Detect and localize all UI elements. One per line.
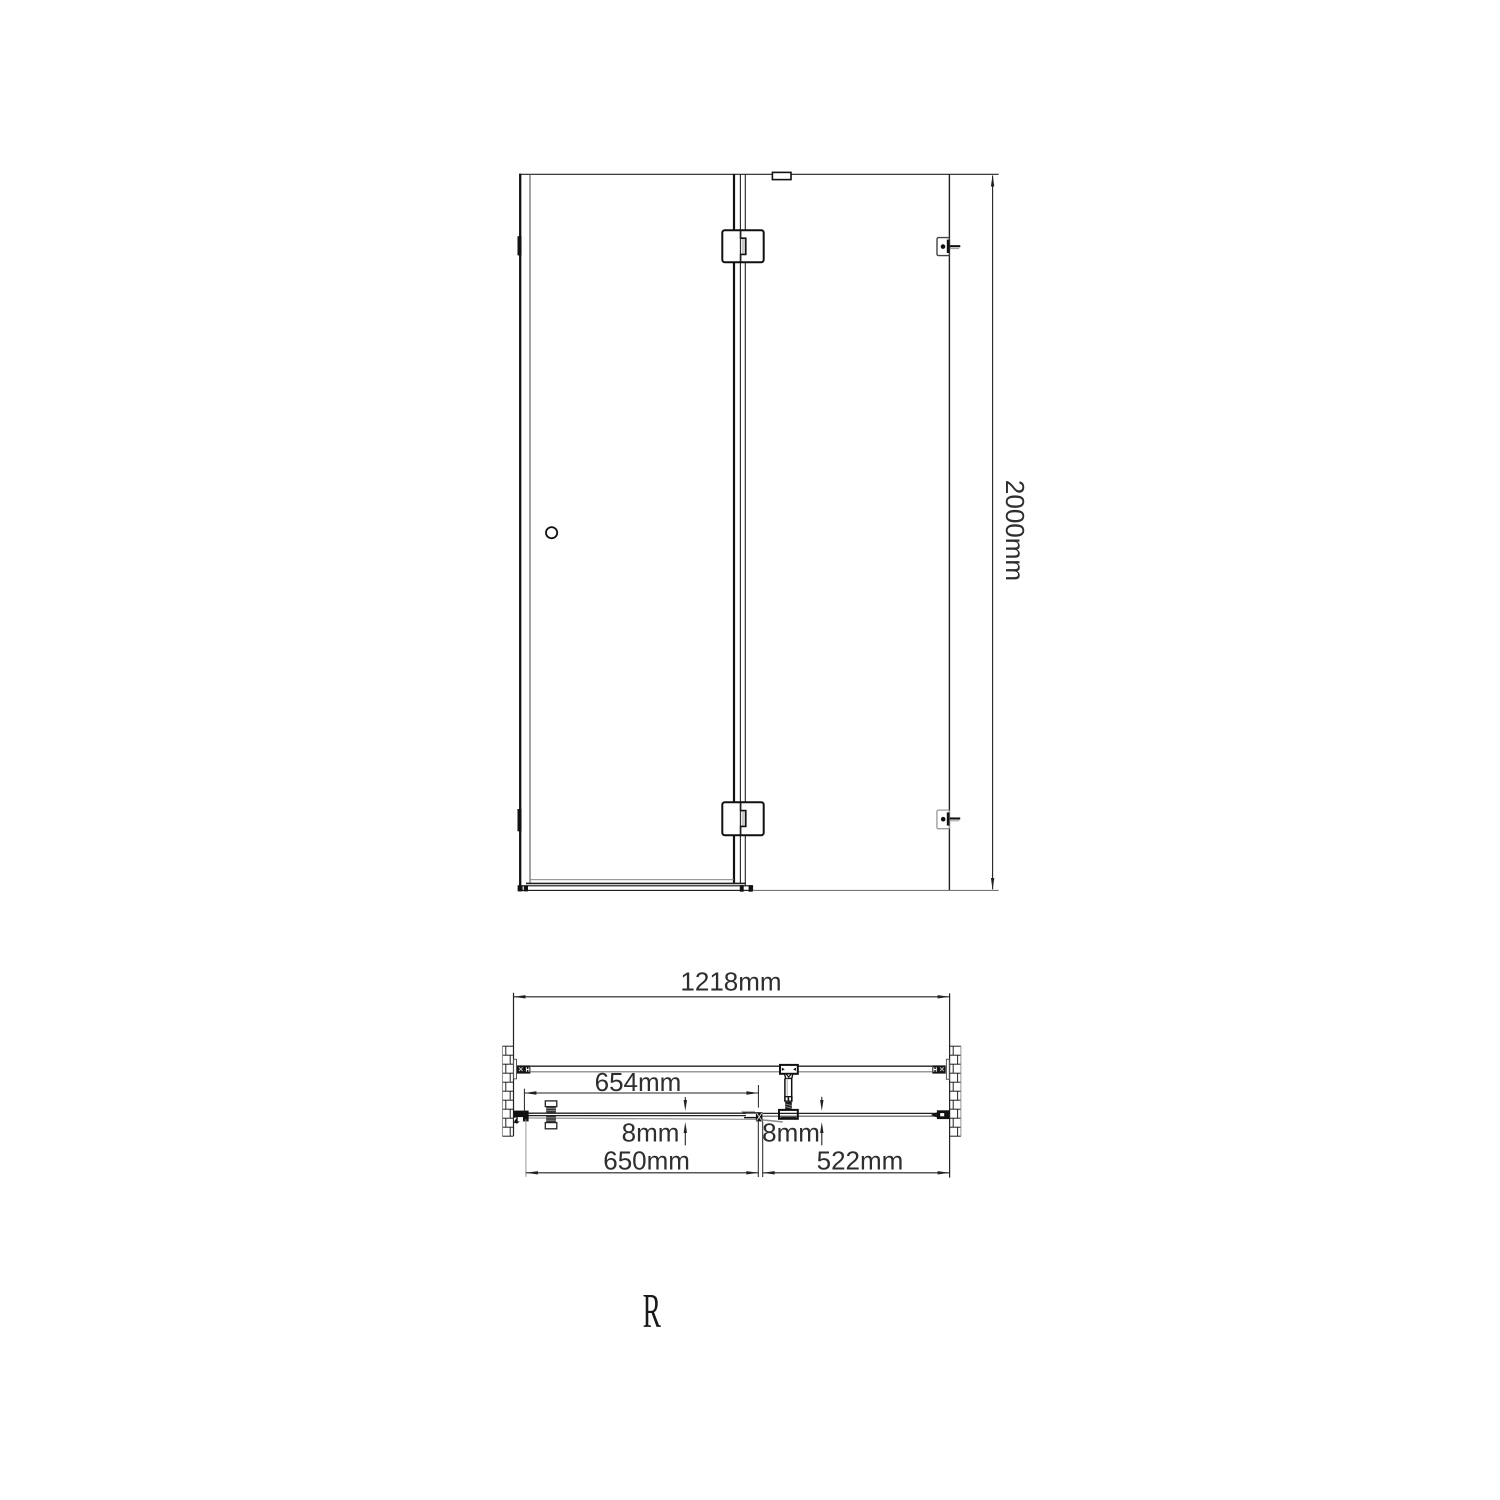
svg-text:8mm: 8mm: [762, 1117, 820, 1147]
svg-text:2000mm: 2000mm: [1000, 480, 1030, 581]
svg-text:522mm: 522mm: [817, 1146, 904, 1176]
svg-text:8mm: 8mm: [622, 1117, 680, 1147]
svg-text:1218mm: 1218mm: [680, 967, 781, 997]
svg-text:654mm: 654mm: [595, 1067, 682, 1097]
svg-text:R: R: [643, 1284, 662, 1338]
svg-text:650mm: 650mm: [603, 1146, 690, 1176]
